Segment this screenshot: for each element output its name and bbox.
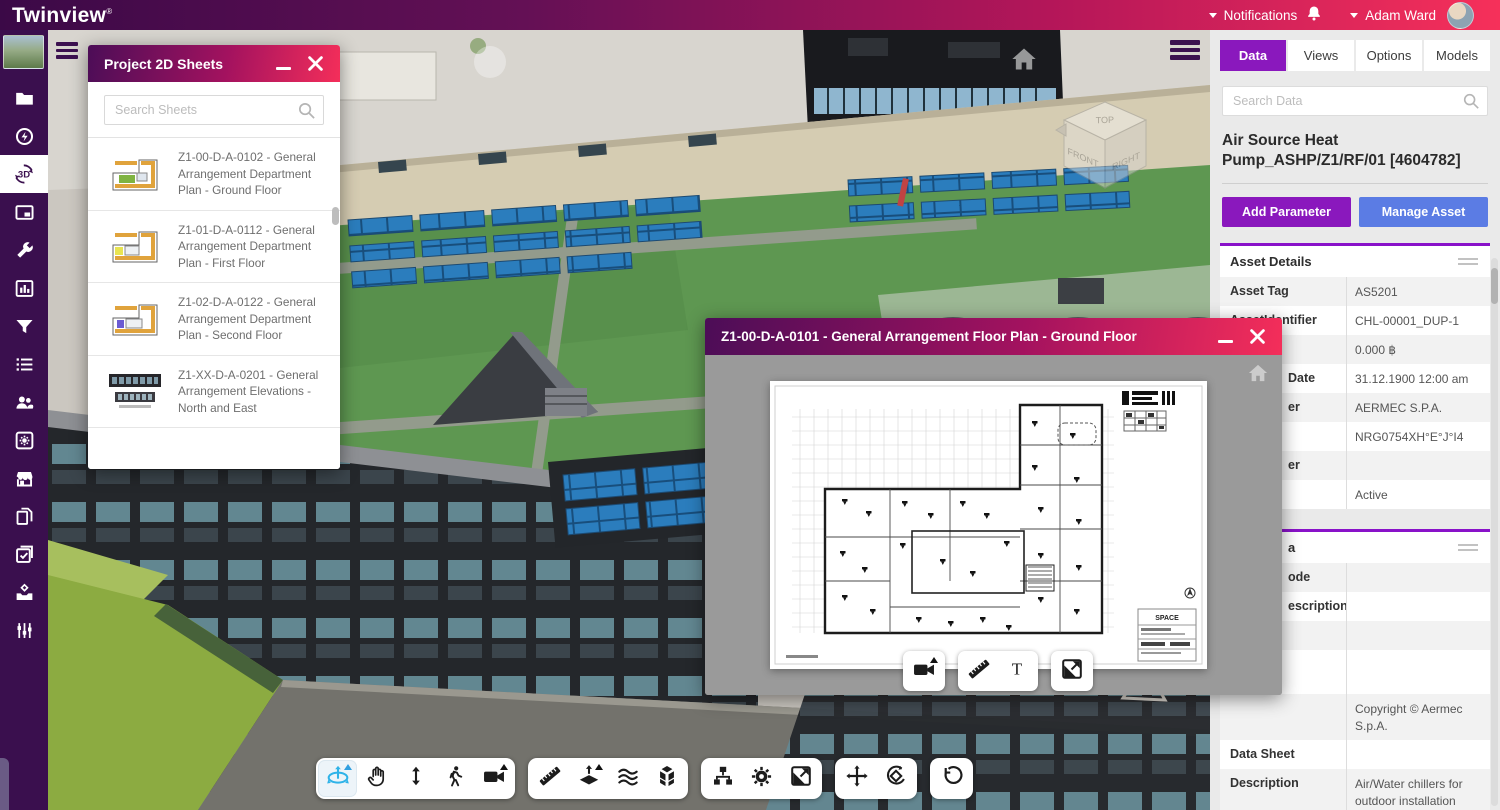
users-icon: [14, 392, 35, 413]
plan-tool-group: [903, 651, 945, 691]
sidebar-item-energy[interactable]: [0, 117, 48, 155]
table-header-title: Asset Details: [1230, 254, 1312, 269]
store-icon: [14, 468, 35, 489]
left-sidebar: 3D: [0, 30, 48, 810]
tool-section-button[interactable]: [569, 760, 608, 797]
sidebar-item-tools[interactable]: [0, 231, 48, 269]
toolbar-group: [930, 758, 973, 799]
sidebar-item-users[interactable]: [0, 383, 48, 421]
field-value: [1346, 592, 1490, 621]
tool-pan-button[interactable]: [357, 760, 396, 797]
sidebar-item-store[interactable]: [0, 459, 48, 497]
search-icon: [297, 101, 316, 125]
documents-icon: [14, 506, 35, 527]
divider: [1222, 183, 1488, 184]
sidebar-item-assets[interactable]: [0, 573, 48, 611]
sidebar-item-preferences[interactable]: [0, 611, 48, 649]
sheet-list-item[interactable]: Z1-01-D-A-0112 - General Arrangement Dep…: [88, 211, 340, 284]
field-value: Active: [1346, 480, 1490, 509]
home-view-icon[interactable]: [1010, 46, 1038, 77]
toolbar-group: [316, 758, 515, 799]
fullscreen-icon: [789, 764, 813, 793]
chevron-down-icon: [1209, 13, 1217, 18]
sheet-thumbnail: [104, 295, 166, 343]
drag-handle-icon[interactable]: [1458, 544, 1478, 551]
drag-handle-icon[interactable]: [1458, 258, 1478, 265]
tool-model-cube-button[interactable]: [647, 760, 686, 797]
table-row: Data Sheet: [1220, 740, 1490, 769]
tab-models[interactable]: Models: [1424, 40, 1490, 71]
toolbar-group: [528, 758, 688, 799]
tab-options[interactable]: Options: [1356, 40, 1422, 71]
model-tree-icon: [711, 764, 735, 793]
svg-text:SPACE: SPACE: [1155, 615, 1179, 622]
panel-scrollbar-thumb[interactable]: [1491, 268, 1498, 304]
settings-icon: [749, 764, 774, 794]
plan-tool-camera-button[interactable]: [905, 653, 943, 689]
sheets-window-header[interactable]: Project 2D Sheets: [88, 45, 340, 82]
tool-reset-button[interactable]: [932, 760, 971, 797]
plan-tool-group: [1051, 651, 1093, 691]
table-row: DescriptionAir/Water chillers for outdoo…: [1220, 769, 1490, 810]
tool-model-tree-button[interactable]: [703, 760, 742, 797]
plan-tool-group: T: [958, 651, 1038, 691]
plan-window-title: Z1-00-D-A-0101 - General Arrangement Flo…: [705, 329, 1212, 344]
viewer-toolbar: [316, 758, 973, 799]
zoom-vertical-icon: [404, 764, 428, 793]
field-value: 0.000 ฿: [1346, 335, 1490, 364]
move-icon: [844, 763, 870, 794]
sidebar-scrollbar[interactable]: [0, 758, 9, 810]
tool-rotate-button[interactable]: [876, 760, 915, 797]
top-bar: Twinview® Notifications Adam Ward: [0, 0, 1500, 30]
tool-zoom-vertical-button[interactable]: [396, 760, 435, 797]
tool-walk-button[interactable]: [435, 760, 474, 797]
reset-icon: [939, 763, 965, 794]
app-logo: Twinview®: [12, 5, 112, 26]
tool-move-button[interactable]: [837, 760, 876, 797]
floor-plan-drawing: SPACE: [770, 381, 1207, 669]
tab-data[interactable]: Data: [1220, 40, 1286, 71]
gear-square-icon: [14, 430, 35, 451]
field-value: [1346, 621, 1490, 650]
sheet-thumbnail: [104, 150, 166, 198]
field-value: AERMEC S.P.A.: [1346, 393, 1490, 422]
sidebar-item-3d[interactable]: 3D: [0, 155, 48, 193]
list-icon: [14, 354, 35, 375]
sidebar-item-folder[interactable]: [0, 79, 48, 117]
sliders-icon: [14, 620, 35, 641]
panel-menu-icon[interactable]: [1170, 40, 1200, 60]
plan-toolbar: T: [903, 651, 1093, 691]
text-icon: T: [1005, 657, 1029, 686]
field-value: CHL-00001_DUP-1: [1346, 306, 1490, 335]
tool-fullscreen-button[interactable]: [781, 760, 820, 797]
add-parameter-button[interactable]: Add Parameter: [1222, 197, 1351, 227]
twinview-app: Twinview® Notifications Adam Ward 3D: [0, 0, 1500, 810]
sheets-window-title: Project 2D Sheets: [88, 56, 270, 72]
tool-explode-button[interactable]: [608, 760, 647, 797]
asset-box-icon: [14, 582, 35, 603]
field-value: [1346, 740, 1490, 769]
search-icon: [1462, 92, 1480, 115]
pan-icon: [365, 764, 389, 793]
plan-tool-measure-button[interactable]: [960, 653, 998, 689]
field-value: [1346, 451, 1490, 480]
sidebar-item-tasks[interactable]: [0, 535, 48, 573]
tool-settings-button[interactable]: [742, 760, 781, 797]
manage-asset-button[interactable]: Manage Asset: [1359, 197, 1488, 227]
wrench-icon: [14, 240, 35, 261]
panel-scrollbar-track: [1491, 258, 1498, 806]
user-menu[interactable]: Adam Ward: [1350, 2, 1474, 29]
walk-icon: [443, 764, 467, 793]
field-label: [1220, 694, 1346, 740]
sheet-title: Z1-01-D-A-0112 - General Arrangement Dep…: [178, 222, 332, 272]
sheet-title: Z1-XX-D-A-0201 - General Arrangement Ele…: [178, 367, 332, 417]
close-icon[interactable]: [1244, 324, 1270, 350]
explode-icon: [615, 763, 641, 794]
bar-chart-icon: [14, 278, 35, 299]
plan-tool-fullscreen-button[interactable]: [1053, 653, 1091, 689]
bell-icon[interactable]: [1304, 4, 1324, 27]
tool-camera-button[interactable]: [474, 760, 513, 797]
tool-badge-icon: [500, 764, 508, 770]
avatar[interactable]: [1447, 2, 1474, 29]
field-value: [1346, 563, 1490, 592]
sheet-thumbnail: [104, 367, 166, 415]
notifications-menu[interactable]: Notifications: [1209, 4, 1325, 27]
tool-orbit-button[interactable]: [318, 760, 357, 797]
sheet-list-item[interactable]: Z1-02-D-A-0122 - General Arrangement Dep…: [88, 283, 340, 356]
field-value: 31.12.1900 12:00 am: [1346, 364, 1490, 393]
tab-views[interactable]: Views: [1288, 40, 1354, 71]
project-thumbnail[interactable]: [3, 35, 44, 69]
sheets-search: [104, 95, 324, 125]
measure-icon: [537, 763, 563, 794]
funnel-icon: [14, 316, 35, 337]
tool-badge-icon: [344, 764, 352, 770]
energy-icon: [14, 126, 35, 147]
plan-tool-text-button[interactable]: T: [998, 653, 1036, 689]
tool-measure-button[interactable]: [530, 760, 569, 797]
sheet-title: Z1-00-D-A-0102 - General Arrangement Dep…: [178, 149, 332, 199]
sidebar-item-filter[interactable]: [0, 307, 48, 345]
rotate-icon: [883, 763, 909, 794]
folder-icon: [14, 88, 35, 109]
tool-badge-icon: [595, 764, 603, 770]
home-view-icon[interactable]: [1247, 363, 1269, 388]
close-icon[interactable]: [302, 51, 328, 77]
measure-icon: [966, 656, 992, 687]
sheets-window: Project 2D Sheets Z1-00-D-A-0102 - Gener…: [88, 45, 340, 469]
field-value: [1346, 650, 1490, 694]
svg-text:TOP: TOP: [1096, 115, 1115, 126]
minimize-icon[interactable]: [270, 51, 296, 77]
plan-window: Z1-00-D-A-0101 - General Arrangement Flo…: [705, 318, 1282, 695]
field-label: Description: [1220, 769, 1346, 810]
svg-text:T: T: [1012, 659, 1023, 678]
sheet-thumbnail: [104, 222, 166, 270]
toolbar-group: [835, 758, 917, 799]
3d-view-icon: 3D: [12, 162, 36, 186]
field-value: Air/Water chillers for outdoor installat…: [1346, 769, 1490, 810]
field-value: AS5201: [1346, 277, 1490, 306]
viewport-menu-icon[interactable]: [56, 42, 78, 59]
task-check-icon: [14, 544, 35, 565]
field-label: Asset Tag: [1220, 277, 1346, 306]
table-row: Asset TagAS5201: [1220, 277, 1490, 306]
table-row: Copyright © Aermec S.p.A.: [1220, 694, 1490, 740]
minimize-icon[interactable]: [1212, 324, 1238, 350]
panel-icon: [14, 202, 35, 223]
sidebar-item-viewer[interactable]: [0, 193, 48, 231]
floor-plan-sheet[interactable]: SPACE: [770, 381, 1207, 669]
data-search: [1222, 86, 1488, 116]
sidebar-item-documents[interactable]: [0, 497, 48, 535]
tool-badge-icon: [930, 657, 938, 663]
user-name: Adam Ward: [1365, 8, 1436, 23]
sheet-title: Z1-02-D-A-0122 - General Arrangement Dep…: [178, 294, 332, 344]
sidebar-item-list[interactable]: [0, 345, 48, 383]
fullscreen-icon: [1060, 657, 1084, 686]
search-sheets-input[interactable]: [104, 95, 324, 125]
toolbar-group: [701, 758, 822, 799]
plan-window-header[interactable]: Z1-00-D-A-0101 - General Arrangement Flo…: [705, 318, 1282, 355]
sheet-list-item[interactable]: Z1-XX-D-A-0201 - General Arrangement Ele…: [88, 356, 340, 429]
model-cube-icon: [654, 763, 680, 794]
view-cube[interactable]: TOP FRONT RIGHT: [1050, 88, 1160, 198]
table-header: Asset Details: [1220, 246, 1490, 277]
field-label: Data Sheet: [1220, 740, 1346, 769]
field-value: Copyright © Aermec S.p.A.: [1346, 694, 1490, 740]
notifications-label: Notifications: [1224, 8, 1298, 23]
sheets-scrollbar-thumb[interactable]: [332, 207, 339, 225]
sidebar-item-charts[interactable]: [0, 269, 48, 307]
right-panel-tabs: DataViewsOptionsModels: [1220, 40, 1490, 71]
sidebar-item-settings[interactable]: [0, 421, 48, 459]
svg-text:3D: 3D: [18, 170, 30, 181]
search-data-input[interactable]: [1222, 86, 1488, 116]
sheet-list-item[interactable]: Z1-00-D-A-0102 - General Arrangement Dep…: [88, 138, 340, 211]
chevron-down-icon: [1350, 13, 1358, 18]
asset-title: Air Source Heat Pump_ASHP/Z1/RF/01 [4604…: [1222, 131, 1488, 171]
field-value: NRG0754XH°E°J°I4: [1346, 422, 1490, 451]
